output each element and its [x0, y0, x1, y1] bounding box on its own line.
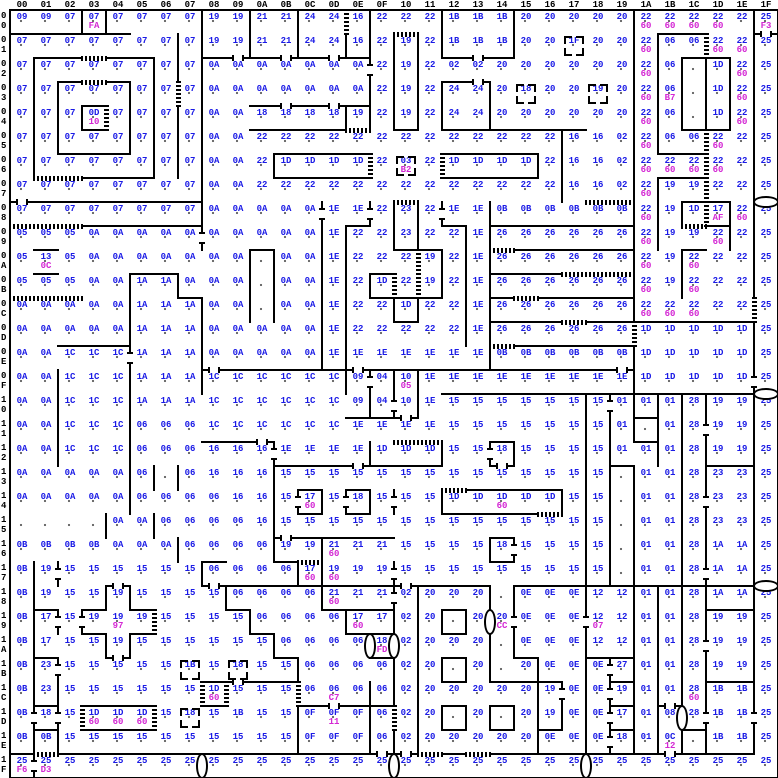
map-cell[interactable]: 15	[562, 492, 586, 502]
map-cell[interactable]: 0A	[250, 60, 274, 70]
map-cell[interactable]: 16	[226, 492, 250, 502]
map-cell[interactable]: 25	[754, 492, 778, 502]
map-cell[interactable]: 19	[730, 444, 754, 454]
map-cell[interactable]: 0A	[298, 300, 322, 310]
map-cell[interactable]: 1D	[658, 348, 682, 358]
map-cell[interactable]: 06	[154, 444, 178, 454]
map-cell[interactable]: 01	[658, 540, 682, 550]
map-cell[interactable]: 0A	[202, 180, 226, 190]
map-cell[interactable]: 19	[730, 612, 754, 622]
map-cell[interactable]: 07	[58, 36, 82, 46]
map-cell[interactable]: 07	[34, 36, 58, 46]
map-cell[interactable]: 0A	[82, 228, 106, 238]
map-cell[interactable]: 0A	[82, 276, 106, 286]
map-cell[interactable]: 0A	[250, 348, 274, 358]
map-cell[interactable]: 20	[538, 84, 562, 94]
map-cell[interactable]: 20	[514, 36, 538, 46]
map-cell[interactable]: 22	[514, 132, 538, 142]
map-cell[interactable]: 1E	[370, 420, 394, 430]
map-cell[interactable]: 15	[130, 564, 154, 574]
map-cell[interactable]: 15	[490, 396, 514, 406]
map-cell[interactable]: 1D	[418, 444, 442, 454]
map-cell[interactable]: 1E	[466, 324, 490, 334]
map-cell[interactable]: 25	[274, 756, 298, 766]
map-cell[interactable]: 22	[250, 156, 274, 166]
map-cell[interactable]: 20	[490, 108, 514, 118]
map-cell[interactable]: 19	[226, 36, 250, 46]
map-cell[interactable]: 15	[538, 420, 562, 430]
map-cell[interactable]: 0F	[298, 708, 322, 718]
map-cell[interactable]: 23	[730, 516, 754, 526]
map-cell[interactable]: 22	[322, 132, 346, 142]
map-cell[interactable]: 0A	[106, 324, 130, 334]
map-cell[interactable]: 0A	[10, 492, 34, 502]
map-cell[interactable]: 0A	[106, 300, 130, 310]
map-cell[interactable]: 19	[538, 708, 562, 718]
map-cell[interactable]: 1D	[466, 492, 490, 502]
map-cell[interactable]: 06	[178, 540, 202, 550]
map-cell[interactable]: 07	[178, 84, 202, 94]
map-cell[interactable]: 20	[490, 732, 514, 742]
map-cell[interactable]: 20	[610, 60, 634, 70]
map-cell[interactable]: 15	[442, 396, 466, 406]
map-cell[interactable]: 15	[106, 660, 130, 670]
map-cell[interactable]: 16	[562, 156, 586, 166]
map-cell[interactable]: 1D	[658, 372, 682, 382]
map-cell[interactable]: 02	[610, 180, 634, 190]
map-cell[interactable]: 1B	[706, 684, 730, 694]
map-cell[interactable]: 05	[34, 276, 58, 286]
map-cell[interactable]: 07	[178, 156, 202, 166]
map-cell[interactable]: 22	[442, 252, 466, 262]
map-cell[interactable]: 25	[466, 756, 490, 766]
map-cell[interactable]: 07	[154, 180, 178, 190]
map-cell[interactable]: 0A	[298, 228, 322, 238]
map-cell[interactable]: 17	[610, 708, 634, 718]
map-cell[interactable]: 25	[322, 756, 346, 766]
map-cell[interactable]: 1E	[466, 348, 490, 358]
map-cell[interactable]: 01	[634, 612, 658, 622]
map-cell[interactable]: 19	[682, 180, 706, 190]
map-cell[interactable]: 07	[178, 132, 202, 142]
map-cell[interactable]: 15	[202, 588, 226, 598]
map-cell[interactable]: 15	[442, 420, 466, 430]
map-cell[interactable]: 20	[442, 732, 466, 742]
map-cell[interactable]: 22	[370, 228, 394, 238]
map-cell[interactable]: 1A	[178, 300, 202, 310]
map-cell[interactable]: 0A	[202, 252, 226, 262]
map-cell[interactable]: 1C	[82, 396, 106, 406]
map-cell[interactable]: 28	[682, 468, 706, 478]
map-cell[interactable]: 22	[346, 300, 370, 310]
map-cell[interactable]: 15	[346, 516, 370, 526]
map-cell[interactable]: 20	[418, 588, 442, 598]
map-cell[interactable]: 0A	[34, 444, 58, 454]
map-cell[interactable]: 20	[610, 12, 634, 22]
map-cell[interactable]: 1A	[154, 396, 178, 406]
map-cell[interactable]: 07	[10, 132, 34, 142]
map-cell[interactable]: 0A	[250, 324, 274, 334]
map-cell[interactable]: 1A	[154, 324, 178, 334]
map-cell[interactable]: 06	[346, 660, 370, 670]
map-cell[interactable]: 02	[394, 612, 418, 622]
map-cell[interactable]: 16	[346, 12, 370, 22]
map-cell[interactable]: 19	[730, 660, 754, 670]
map-cell[interactable]: 1E	[346, 420, 370, 430]
map-cell[interactable]: 0A	[274, 252, 298, 262]
map-cell[interactable]: 19	[706, 636, 730, 646]
map-cell[interactable]: 0E	[514, 612, 538, 622]
map-cell[interactable]: 25	[754, 708, 778, 718]
map-cell[interactable]: 0E	[538, 732, 562, 742]
map-cell[interactable]: 20	[490, 684, 514, 694]
map-cell[interactable]: 02	[394, 588, 418, 598]
map-cell[interactable]: 07	[10, 36, 34, 46]
map-cell[interactable]: 07	[34, 60, 58, 70]
map-cell[interactable]: 0A	[106, 228, 130, 238]
map-cell[interactable]: 15	[442, 564, 466, 574]
map-cell[interactable]: 19	[34, 588, 58, 598]
map-cell[interactable]: 0F	[322, 732, 346, 742]
map-cell[interactable]: 07	[34, 108, 58, 118]
map-cell[interactable]: 0A	[106, 492, 130, 502]
map-cell[interactable]: 1D	[466, 156, 490, 166]
map-cell[interactable]: 0A	[274, 84, 298, 94]
map-cell[interactable]: 0E	[562, 636, 586, 646]
map-cell[interactable]: 1E	[586, 372, 610, 382]
map-cell[interactable]: 15	[562, 564, 586, 574]
map-cell[interactable]: 15	[442, 540, 466, 550]
map-cell[interactable]: 0A	[10, 324, 34, 334]
map-cell[interactable]: 25	[754, 660, 778, 670]
map-cell[interactable]: 15	[514, 396, 538, 406]
map-cell[interactable]: 25	[754, 540, 778, 550]
map-cell[interactable]: 0A	[10, 372, 34, 382]
map-cell[interactable]: 22	[370, 60, 394, 70]
map-cell[interactable]: 15	[466, 516, 490, 526]
map-cell[interactable]: 0A	[274, 324, 298, 334]
map-cell[interactable]: 1D	[442, 156, 466, 166]
map-cell[interactable]: 06	[130, 468, 154, 478]
map-cell[interactable]: 1C	[226, 396, 250, 406]
map-cell[interactable]: 22	[370, 84, 394, 94]
map-cell[interactable]: 15	[202, 732, 226, 742]
map-cell[interactable]: 22	[394, 132, 418, 142]
map-cell[interactable]: 0A	[274, 276, 298, 286]
map-cell[interactable]: 22	[730, 156, 754, 166]
map-cell[interactable]: 15	[82, 684, 106, 694]
map-cell[interactable]: 1E	[322, 204, 346, 214]
map-cell[interactable]: 01	[634, 564, 658, 574]
map-cell[interactable]: 0A	[106, 540, 130, 550]
map-cell[interactable]: 0E	[562, 732, 586, 742]
map-cell[interactable]: 0E	[514, 588, 538, 598]
map-cell[interactable]: 1D	[274, 156, 298, 166]
map-cell[interactable]: 01	[634, 444, 658, 454]
map-cell[interactable]: 22	[346, 180, 370, 190]
map-cell[interactable]: 01	[634, 732, 658, 742]
map-cell[interactable]: 07	[106, 132, 130, 142]
map-cell[interactable]: 0A	[154, 252, 178, 262]
map-cell[interactable]: 0A	[130, 540, 154, 550]
map-cell[interactable]: 19	[706, 660, 730, 670]
map-cell[interactable]: 15	[58, 660, 82, 670]
map-cell[interactable]: 22	[370, 300, 394, 310]
map-cell[interactable]: 0A	[274, 228, 298, 238]
map-cell[interactable]: 19	[706, 612, 730, 622]
map-cell[interactable]: 19	[106, 588, 130, 598]
map-cell[interactable]: 19	[202, 12, 226, 22]
map-cell[interactable]: 28	[682, 516, 706, 526]
map-cell[interactable]: 1A	[154, 276, 178, 286]
map-cell[interactable]: 15	[538, 516, 562, 526]
map-cell[interactable]: 22	[418, 60, 442, 70]
map-cell[interactable]: 23	[706, 468, 730, 478]
map-cell[interactable]: 1D	[682, 204, 706, 214]
map-cell[interactable]: 25	[754, 612, 778, 622]
map-cell[interactable]: 1C	[298, 396, 322, 406]
map-cell[interactable]: 21	[274, 12, 298, 22]
map-cell[interactable]: 25	[754, 252, 778, 262]
map-cell[interactable]: 1A	[706, 564, 730, 574]
map-cell[interactable]: 22	[418, 324, 442, 334]
map-cell[interactable]: 06	[298, 636, 322, 646]
map-cell[interactable]: 01	[658, 492, 682, 502]
map-cell[interactable]: 1D	[634, 324, 658, 334]
map-cell[interactable]: 1A	[178, 396, 202, 406]
map-cell[interactable]: 15	[178, 732, 202, 742]
map-cell[interactable]: 07	[178, 180, 202, 190]
map-cell[interactable]: 07	[58, 180, 82, 190]
map-cell[interactable]: 0A	[202, 132, 226, 142]
map-cell[interactable]: 0A	[130, 228, 154, 238]
map-cell[interactable]: 02	[610, 132, 634, 142]
map-cell[interactable]: 1D	[370, 276, 394, 286]
map-cell[interactable]: 22	[442, 228, 466, 238]
map-cell[interactable]: 22	[418, 180, 442, 190]
map-cell[interactable]: 25	[754, 756, 778, 766]
map-cell[interactable]: 12	[610, 588, 634, 598]
map-cell[interactable]: 1B	[466, 12, 490, 22]
map-cell[interactable]: 0F	[346, 708, 370, 718]
map-cell[interactable]: 25	[754, 372, 778, 382]
map-cell[interactable]: 19	[658, 228, 682, 238]
map-cell[interactable]: 07	[10, 60, 34, 70]
map-cell[interactable]: 15	[178, 684, 202, 694]
map-cell[interactable]: 07	[130, 36, 154, 46]
map-cell[interactable]: 15	[514, 468, 538, 478]
map-cell[interactable]: 15	[418, 564, 442, 574]
map-cell[interactable]: 15	[202, 612, 226, 622]
map-cell[interactable]: 1A	[178, 348, 202, 358]
map-cell[interactable]: 1C	[82, 372, 106, 382]
map-cell[interactable]: 22	[298, 132, 322, 142]
map-cell[interactable]: 01	[634, 636, 658, 646]
map-cell[interactable]: 15	[226, 684, 250, 694]
map-cell[interactable]: 25	[226, 756, 250, 766]
map-cell[interactable]: 1B	[706, 732, 730, 742]
map-cell[interactable]: 25	[346, 756, 370, 766]
map-cell[interactable]: 19	[706, 420, 730, 430]
map-cell[interactable]: 20	[418, 684, 442, 694]
map-cell[interactable]: 19	[730, 420, 754, 430]
map-cell[interactable]: 12	[586, 636, 610, 646]
map-cell[interactable]: 07	[130, 60, 154, 70]
map-cell[interactable]: 22	[706, 252, 730, 262]
map-cell[interactable]: 15	[130, 588, 154, 598]
map-cell[interactable]: 22	[538, 156, 562, 166]
map-cell[interactable]: 15	[442, 468, 466, 478]
map-cell[interactable]: 1A	[154, 372, 178, 382]
map-cell[interactable]: 15	[274, 468, 298, 478]
map-cell[interactable]: 07	[34, 204, 58, 214]
map-cell[interactable]: 22	[322, 180, 346, 190]
map-cell[interactable]: 1D	[442, 492, 466, 502]
map-cell[interactable]: 15	[250, 684, 274, 694]
map-cell[interactable]: 07	[178, 204, 202, 214]
map-cell[interactable]: 19	[418, 276, 442, 286]
map-cell[interactable]: 1E	[346, 444, 370, 454]
map-cell[interactable]: 01	[634, 540, 658, 550]
map-cell[interactable]: 20	[466, 708, 490, 718]
map-cell[interactable]: 1C	[58, 444, 82, 454]
map-cell[interactable]: 22	[730, 12, 754, 22]
map-cell[interactable]: 1C	[226, 372, 250, 382]
map-cell[interactable]: 1A	[154, 300, 178, 310]
map-cell[interactable]: 23	[394, 228, 418, 238]
map-cell[interactable]: 15	[442, 516, 466, 526]
map-cell[interactable]: 07	[154, 132, 178, 142]
map-cell[interactable]: 1D	[514, 492, 538, 502]
map-cell[interactable]: 15	[274, 660, 298, 670]
map-cell[interactable]: 07	[130, 204, 154, 214]
map-cell[interactable]: 0A	[106, 276, 130, 286]
map-cell[interactable]: 1C	[58, 348, 82, 358]
map-cell[interactable]: 19	[346, 564, 370, 574]
map-cell[interactable]: 16	[202, 444, 226, 454]
map-cell[interactable]: 01	[634, 660, 658, 670]
map-cell[interactable]: 15	[538, 468, 562, 478]
map-cell[interactable]: 18	[250, 108, 274, 118]
map-cell[interactable]: 26	[490, 324, 514, 334]
map-cell[interactable]: 26	[586, 300, 610, 310]
map-cell[interactable]: 22	[706, 300, 730, 310]
map-cell[interactable]: 25	[754, 228, 778, 238]
map-cell[interactable]: 0A	[298, 84, 322, 94]
map-cell[interactable]: 0A	[226, 300, 250, 310]
map-cell[interactable]: 22	[370, 252, 394, 262]
map-cell[interactable]: 06	[274, 636, 298, 646]
map-cell[interactable]: 06	[250, 612, 274, 622]
map-cell[interactable]: 26	[538, 276, 562, 286]
map-cell[interactable]: 0B	[586, 204, 610, 214]
map-cell[interactable]: 22	[418, 156, 442, 166]
map-cell[interactable]: 1B	[490, 12, 514, 22]
map-cell[interactable]: 28	[682, 588, 706, 598]
map-cell[interactable]: 1C	[58, 420, 82, 430]
map-cell[interactable]: 20	[466, 684, 490, 694]
map-cell[interactable]: 22	[274, 180, 298, 190]
map-cell[interactable]: 06	[658, 132, 682, 142]
map-cell[interactable]: 15	[154, 636, 178, 646]
map-cell[interactable]: 15	[58, 708, 82, 718]
map-cell[interactable]: 1D	[706, 84, 730, 94]
map-cell[interactable]: 19	[394, 84, 418, 94]
map-cell[interactable]: 15	[298, 516, 322, 526]
map-cell[interactable]: 20	[586, 60, 610, 70]
map-cell[interactable]: 06	[250, 588, 274, 598]
map-cell[interactable]: 28	[682, 396, 706, 406]
map-cell[interactable]: 15	[202, 660, 226, 670]
map-cell[interactable]: 07	[130, 108, 154, 118]
map-cell[interactable]: 0A	[82, 492, 106, 502]
map-cell[interactable]: 15	[370, 516, 394, 526]
map-cell[interactable]: 0A	[202, 300, 226, 310]
map-cell[interactable]: 22	[706, 276, 730, 286]
map-cell[interactable]: 24	[322, 12, 346, 22]
map-cell[interactable]: 0B	[10, 588, 34, 598]
map-cell[interactable]: 25	[418, 756, 442, 766]
map-cell[interactable]: 25	[298, 756, 322, 766]
map-cell[interactable]: 0A	[10, 468, 34, 478]
map-cell[interactable]: 20	[442, 684, 466, 694]
map-cell[interactable]: 15	[466, 564, 490, 574]
map-cell[interactable]: 0A	[10, 300, 34, 310]
map-cell[interactable]: 1A	[730, 588, 754, 598]
map-cell[interactable]: 06	[178, 444, 202, 454]
map-cell[interactable]: 15	[154, 588, 178, 598]
map-cell[interactable]: 07	[130, 156, 154, 166]
map-cell[interactable]: 22	[730, 180, 754, 190]
map-cell[interactable]: 0E	[538, 660, 562, 670]
map-cell[interactable]: 27	[610, 660, 634, 670]
map-cell[interactable]: 07	[34, 156, 58, 166]
map-cell[interactable]: 22	[466, 132, 490, 142]
map-cell[interactable]: 20	[610, 108, 634, 118]
map-cell[interactable]: 02	[610, 156, 634, 166]
map-cell[interactable]: 15	[178, 588, 202, 598]
map-cell[interactable]: 0B	[10, 636, 34, 646]
map-cell[interactable]: 15	[586, 540, 610, 550]
map-cell[interactable]: 1A	[154, 348, 178, 358]
map-cell[interactable]: 18	[274, 108, 298, 118]
map-cell[interactable]: 16	[586, 156, 610, 166]
map-cell[interactable]: 07	[10, 108, 34, 118]
map-cell[interactable]: 1D	[514, 156, 538, 166]
map-cell[interactable]: 19	[658, 204, 682, 214]
map-cell[interactable]: 07	[58, 60, 82, 70]
map-cell[interactable]: 19	[706, 396, 730, 406]
map-cell[interactable]: 20	[538, 12, 562, 22]
map-cell[interactable]: 06	[274, 588, 298, 598]
map-cell[interactable]: 25	[442, 756, 466, 766]
map-cell[interactable]: 07	[58, 108, 82, 118]
map-cell[interactable]: 21	[346, 540, 370, 550]
map-cell[interactable]: 15	[586, 444, 610, 454]
map-cell[interactable]: 16	[250, 516, 274, 526]
map-cell[interactable]: 07	[82, 36, 106, 46]
map-cell[interactable]: 04	[370, 372, 394, 382]
map-cell[interactable]: 15	[274, 516, 298, 526]
map-cell[interactable]: 21	[250, 36, 274, 46]
map-cell[interactable]: 0E	[538, 612, 562, 622]
map-cell[interactable]: 1C	[250, 372, 274, 382]
map-cell[interactable]: 15	[130, 660, 154, 670]
map-cell[interactable]: 0A	[130, 252, 154, 262]
map-cell[interactable]: 0A	[82, 324, 106, 334]
map-cell[interactable]: 0A	[274, 348, 298, 358]
map-cell[interactable]: 20	[490, 84, 514, 94]
